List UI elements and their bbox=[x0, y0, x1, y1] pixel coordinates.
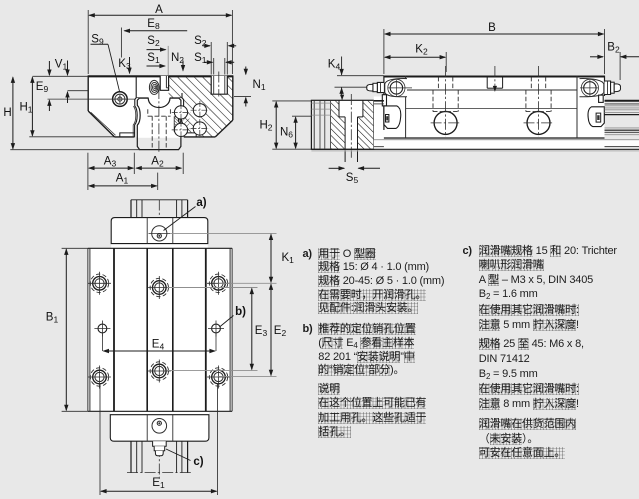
svg-text:b): b) bbox=[235, 306, 246, 318]
svg-text:B1: B1 bbox=[46, 312, 59, 325]
svg-text:N6: N6 bbox=[280, 127, 293, 140]
svg-text:S5: S5 bbox=[346, 172, 359, 185]
svg-text:S1: S1 bbox=[194, 52, 207, 65]
svg-text:c): c) bbox=[193, 456, 203, 468]
svg-text:K2: K2 bbox=[415, 44, 428, 57]
svg-text:N2: N2 bbox=[171, 52, 184, 65]
svg-text:A1: A1 bbox=[116, 173, 129, 186]
svg-text:E4: E4 bbox=[152, 339, 165, 352]
svg-text:H1: H1 bbox=[19, 102, 32, 115]
svg-text:A3: A3 bbox=[104, 156, 117, 169]
svg-text:H: H bbox=[3, 107, 11, 119]
svg-text:K4: K4 bbox=[328, 59, 341, 72]
svg-text:a): a) bbox=[196, 197, 206, 209]
svg-text:N1: N1 bbox=[253, 79, 266, 92]
svg-text:E8: E8 bbox=[147, 18, 160, 31]
svg-text:S2: S2 bbox=[147, 35, 160, 48]
svg-text:E1: E1 bbox=[152, 477, 165, 490]
svg-text:A2: A2 bbox=[151, 156, 164, 169]
svg-text:K1: K1 bbox=[282, 252, 295, 265]
svg-text:E3: E3 bbox=[255, 325, 268, 338]
svg-text:E9: E9 bbox=[36, 81, 49, 94]
svg-text:B: B bbox=[488, 22, 496, 34]
svg-text:E2: E2 bbox=[274, 325, 287, 338]
svg-text:V1: V1 bbox=[55, 59, 68, 72]
svg-text:B2: B2 bbox=[607, 42, 620, 55]
svg-text:H2: H2 bbox=[259, 120, 272, 133]
svg-text:A: A bbox=[155, 4, 163, 16]
svg-text:S1: S1 bbox=[147, 52, 160, 65]
